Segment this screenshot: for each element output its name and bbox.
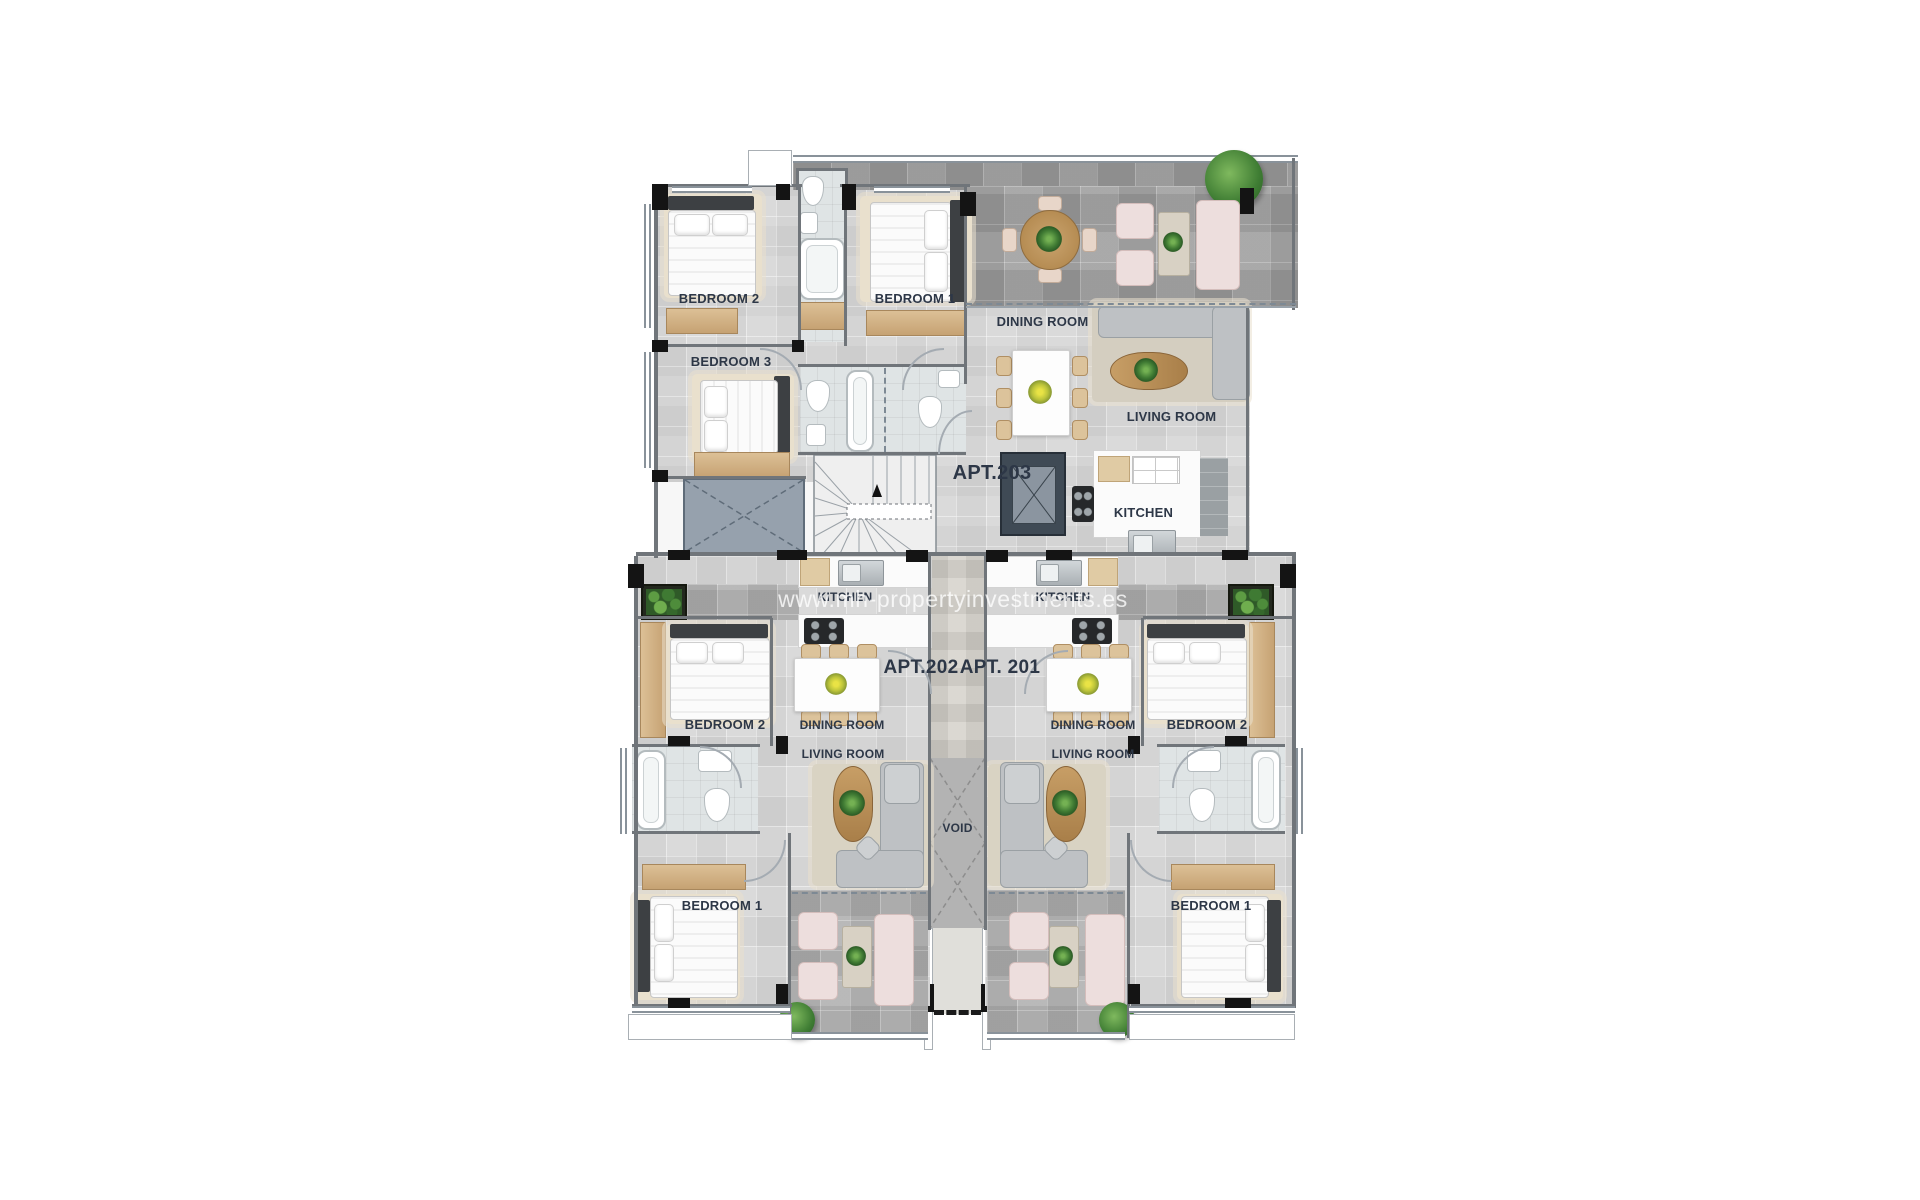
room-label-bedroom1-apt201: BEDROOM 1 — [1161, 899, 1261, 913]
wardrobe — [640, 622, 666, 738]
window — [644, 352, 651, 468]
sectional-sofa — [1000, 850, 1088, 888]
wall — [1292, 158, 1295, 310]
room-label-dining-apt203: DINING ROOM — [990, 315, 1095, 329]
entry-threshold — [934, 1010, 981, 1015]
cutting-board — [800, 558, 830, 586]
wall — [1143, 616, 1295, 619]
pillow — [676, 642, 708, 664]
wall-segment — [652, 340, 668, 352]
room-label-living-apt203: LIVING ROOM — [1119, 410, 1224, 424]
outdoor-sofa — [1196, 200, 1240, 290]
bath-cabinet — [799, 302, 845, 330]
room-label-kitchen-apt203: KITCHEN — [1091, 506, 1196, 520]
dining-chair — [996, 356, 1012, 376]
wardrobe — [1171, 864, 1275, 890]
dining-chair — [996, 420, 1012, 440]
table-plant — [1036, 226, 1062, 252]
pillow — [924, 210, 948, 250]
wardrobe — [694, 452, 790, 478]
window — [1129, 1006, 1295, 1013]
entry-corridor — [930, 928, 985, 1014]
wall-segment — [1225, 998, 1251, 1008]
wall-segment — [628, 564, 644, 588]
pillow — [654, 904, 674, 942]
wall-segment — [776, 984, 788, 1004]
pillow — [1153, 642, 1185, 664]
room-label-bedroom2-apt201: BEDROOM 2 — [1157, 718, 1257, 732]
cutting-board — [1088, 558, 1118, 586]
wall-segment — [1225, 736, 1247, 746]
shower-divider — [884, 368, 886, 452]
room-label-bedroom2-apt203: BEDROOM 2 — [664, 292, 774, 306]
wall — [964, 346, 967, 384]
outdoor-chair — [1082, 228, 1097, 252]
wall — [654, 476, 806, 479]
coffee-table-plant — [1052, 790, 1078, 816]
outdoor-chair — [1038, 268, 1062, 283]
dresser — [866, 310, 966, 336]
pillow — [1245, 944, 1265, 982]
wall — [636, 552, 1296, 556]
sectional-sofa — [1212, 306, 1250, 400]
wall-segment — [777, 550, 807, 560]
terrace-rail — [790, 1032, 928, 1040]
room-label-dining-apt202: DINING ROOM — [792, 719, 892, 732]
window — [620, 748, 627, 834]
outdoor-armchair — [1009, 962, 1049, 1000]
coffee-table-plant — [839, 790, 865, 816]
bathtub — [799, 238, 845, 300]
apartment-label-apt203: APT.203 — [932, 462, 1052, 485]
vent-shaft — [748, 150, 792, 186]
wall-segment — [1240, 188, 1254, 214]
floor-plan-image: BEDROOM 2 BEDROOM 1 BEDROOM 3 DINING ROO… — [0, 0, 1920, 1200]
kitchen-sink — [1036, 560, 1082, 586]
wall — [634, 556, 638, 1008]
outdoor-armchair — [1116, 250, 1154, 286]
dining-chair — [1072, 356, 1088, 376]
wall — [636, 616, 772, 619]
balcony-sill — [1129, 1014, 1295, 1040]
bathtub — [846, 370, 874, 452]
wall-segment — [986, 550, 1008, 562]
bathtub — [636, 750, 666, 830]
window — [874, 186, 950, 193]
wall-segment — [1128, 984, 1140, 1004]
coffee-table-plant — [1053, 946, 1073, 966]
wall-segment — [792, 340, 804, 352]
outdoor-armchair — [1009, 912, 1049, 950]
table-plant — [1077, 673, 1099, 695]
room-label-dining-apt201: DINING ROOM — [1043, 719, 1143, 732]
shaft — [683, 478, 805, 554]
sectional-sofa — [1098, 306, 1220, 338]
terrace-window — [989, 892, 1123, 894]
kitchen-cabinet — [1132, 456, 1180, 484]
wall-segment — [960, 192, 976, 216]
room-label-bedroom1-apt202: BEDROOM 1 — [672, 899, 772, 913]
wall — [654, 344, 802, 347]
outdoor-armchair — [798, 962, 838, 1000]
cutting-board — [1098, 456, 1130, 482]
pillow — [654, 944, 674, 982]
room-label-living-apt201: LIVING ROOM — [1043, 748, 1143, 761]
wall-segment — [668, 998, 690, 1008]
outdoor-chair — [1002, 228, 1017, 252]
watermark-text: www.mh-propertyinvestments.es — [600, 586, 1306, 613]
terrace-rail — [987, 1032, 1125, 1040]
stove — [1072, 618, 1112, 644]
outdoor-sofa — [1085, 914, 1125, 1006]
wall — [632, 744, 760, 747]
room-label-bedroom3-apt203: BEDROOM 3 — [676, 355, 786, 369]
bed-headboard — [1267, 900, 1281, 992]
wall-segment — [776, 184, 790, 200]
wall-segment — [652, 184, 668, 210]
void-label: VOID — [930, 822, 985, 835]
sofa-chaise — [1004, 764, 1040, 804]
balcony-sill — [628, 1014, 792, 1040]
bathtub — [1251, 750, 1281, 830]
wall — [798, 186, 801, 346]
pillow — [704, 420, 728, 452]
pillow — [1189, 642, 1221, 664]
sectional-sofa — [836, 850, 924, 888]
terrace-window — [792, 892, 926, 894]
pillow — [674, 214, 710, 236]
wall-segment — [668, 550, 690, 560]
wall-segment — [906, 550, 928, 562]
outdoor-chair — [1038, 196, 1062, 211]
sofa-chaise — [884, 764, 920, 804]
bed-headboard — [636, 900, 650, 992]
window — [1296, 748, 1303, 834]
pillow — [704, 386, 728, 418]
bed-headboard — [1147, 624, 1245, 638]
wall-segment — [1222, 550, 1248, 560]
washbasin — [806, 424, 826, 446]
apartment-label-apt201: APT. 201 — [945, 657, 1055, 679]
washbasin — [800, 212, 818, 234]
fridge-counter — [1200, 458, 1228, 536]
wall-segment — [668, 736, 690, 746]
wall-segment — [776, 736, 788, 754]
table-plant — [1028, 380, 1052, 404]
wall — [1157, 831, 1285, 834]
coffee-table-plant — [1134, 358, 1158, 382]
staircase — [813, 454, 937, 558]
wall-segment — [842, 184, 856, 210]
window — [672, 186, 752, 193]
outdoor-sofa — [874, 914, 914, 1006]
pillow — [924, 252, 948, 292]
wall — [632, 831, 760, 834]
window — [644, 204, 651, 328]
wall — [654, 184, 658, 558]
outdoor-armchair — [1116, 203, 1154, 239]
window — [632, 1006, 790, 1013]
dining-chair — [996, 388, 1012, 408]
room-label-bedroom2-apt202: BEDROOM 2 — [675, 718, 775, 732]
kitchen-sink — [838, 560, 884, 586]
wall — [796, 168, 848, 171]
wall — [1246, 306, 1249, 556]
wall-segment — [1046, 550, 1072, 560]
terrace-boundary — [966, 303, 1296, 305]
outdoor-armchair — [798, 912, 838, 950]
wall — [844, 186, 847, 346]
stove — [804, 618, 844, 644]
void-shaft — [930, 758, 985, 928]
wall — [1157, 744, 1285, 747]
coffee-table-plant — [1163, 232, 1183, 252]
wall-segment — [652, 470, 668, 482]
dining-chair — [1072, 420, 1088, 440]
bed-headboard — [670, 624, 768, 638]
table-plant — [825, 673, 847, 695]
pillow — [712, 214, 748, 236]
coffee-table-plant — [846, 946, 866, 966]
window-line — [966, 306, 1296, 308]
room-label-bedroom1-apt203: BEDROOM 1 — [860, 292, 970, 306]
wall-segment — [1280, 564, 1296, 588]
wardrobe — [642, 864, 746, 890]
dresser — [666, 308, 738, 334]
room-label-living-apt202: LIVING ROOM — [793, 748, 893, 761]
bed-headboard — [668, 196, 754, 210]
pillow — [712, 642, 744, 664]
dining-chair — [1072, 388, 1088, 408]
